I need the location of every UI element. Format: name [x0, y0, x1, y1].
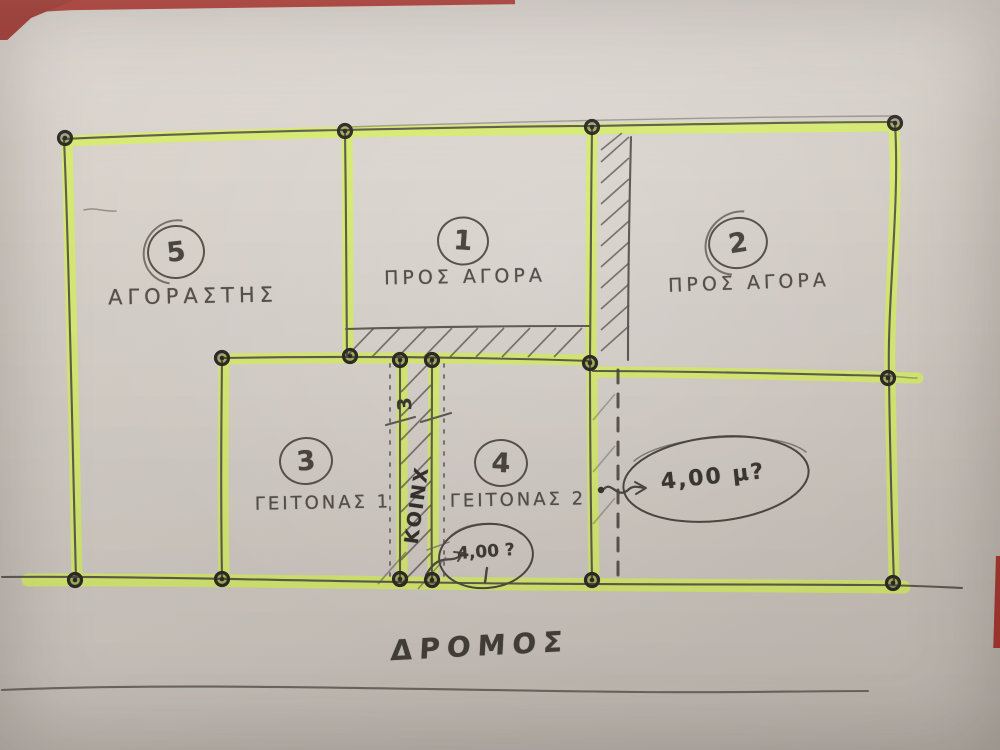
hatch-line [450, 328, 478, 357]
corner-dot-core [886, 376, 891, 381]
boundary-parcel3-left [223, 361, 224, 577]
corner-dot-core [398, 358, 403, 363]
road-lower-line [2, 687, 868, 693]
hatch-line [601, 305, 629, 330]
corner-dot-core [348, 354, 353, 359]
hatch-line [601, 284, 629, 309]
hatch-line [601, 326, 629, 351]
measurement-question-small-label: 4,00 ? [457, 540, 516, 564]
strip-width-value: 3 [394, 397, 417, 412]
boundary-left [67, 142, 77, 577]
corner-dot-core [398, 577, 403, 582]
corner-dot-core [220, 577, 225, 582]
corner-dot-core [590, 125, 595, 130]
corner-dot-core [430, 358, 435, 363]
hatch-line [601, 221, 629, 246]
highlighter-boundaries [28, 126, 918, 587]
parcel-3-label: ΓΕΙΤΟΝΑΣ 1 [255, 491, 392, 514]
hatch-line [601, 200, 629, 225]
hatch-line [601, 263, 629, 288]
corner-dot-core [343, 129, 348, 134]
parcel-1-label: ΠΡΟΣ ΑΓΟΡΑ [384, 265, 546, 290]
hatch-line [476, 328, 504, 357]
parcel-5-number: 5 [144, 222, 207, 282]
corner-dot-core [590, 578, 595, 583]
corner-dot-core [430, 578, 435, 583]
hatch-line [601, 133, 622, 150]
hatch-line [528, 328, 556, 357]
corner-dot-core [891, 581, 896, 586]
hatch-line [601, 242, 629, 267]
corner-dot-core [73, 578, 78, 583]
hatch-line [601, 158, 629, 183]
hatch-line [601, 137, 629, 162]
parcel-4-label: ΓΕΙΤΟΝΑΣ 2 [450, 488, 587, 511]
parcel-5-label: ΑΓΟΡΑΣΤΗΣ [108, 283, 278, 310]
hatch-line [601, 179, 629, 204]
corner-dot-core [63, 136, 68, 141]
hatching-and-corner-dots [59, 117, 902, 590]
sketch-photo: 5 ΑΓΟΡΑΣΤΗΣ 1 ΠΡΟΣ ΑΓΟΡΑ 2 ΠΡΟΣ ΑΓΟΡΑ 3 … [0, 0, 1000, 750]
corner-dot-core [893, 121, 898, 126]
boundary-strip-right [433, 362, 434, 577]
pencil-lines [2, 116, 962, 692]
hatch-line [502, 328, 530, 357]
hatch-line [554, 328, 582, 357]
corner-dot-core [588, 361, 593, 366]
hatch-line [424, 328, 452, 357]
corner-dot-core [220, 356, 225, 361]
